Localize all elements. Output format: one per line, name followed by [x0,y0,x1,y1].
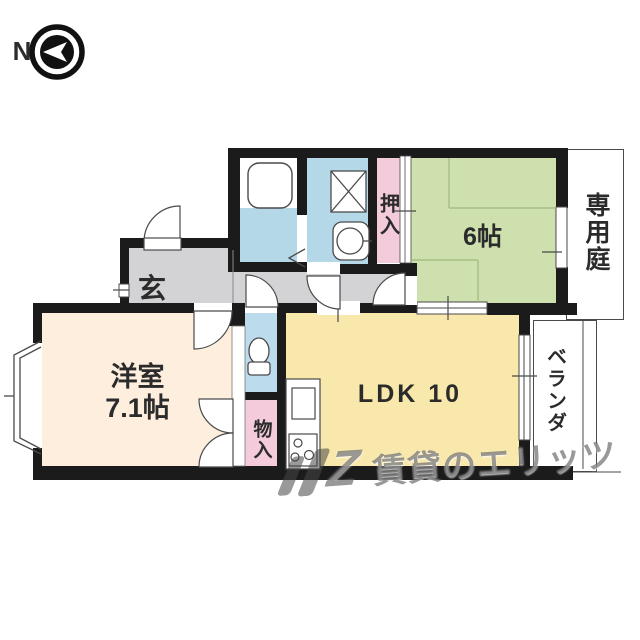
closet-label: 押入 [375,182,401,248]
western-room-label: 洋室 7.1帖 [55,360,220,426]
bathtub-icon [248,163,292,208]
storage-door-strip [232,326,245,466]
north-label: N [6,36,38,66]
kitchen-sink-icon [292,388,315,419]
western-room-label-line1: 洋室 [111,362,165,393]
tatami-window [542,207,567,268]
private-garden-label: 専用庭 [581,186,611,278]
north-compass-icon [32,27,82,77]
tatami-ldk-sliding-door [417,296,487,320]
washing-machine-icon [331,171,366,212]
toilet-icon [248,338,270,375]
bath-door-strip [297,215,307,262]
ldk-label: LDK 10 [330,378,490,410]
ldk-veranda-sliding-door [512,335,537,440]
entrance-door-panel [144,238,181,250]
plan-linework [0,0,640,640]
floor-plan: N 玄 洋室 7.1帖 LDK 10 6帖 押入 物入 専用庭 ベランダ Z 賃… [0,0,640,640]
tatami-room-label: 6帖 [435,220,530,250]
toilet-door-swing [246,275,278,307]
storage-label: 物入 [247,412,275,468]
entrance-label: 玄 [130,270,174,304]
entrance-window [113,284,129,297]
tatami-door-gap [404,276,417,305]
watermark-logo-letter: Z [324,438,363,499]
washroom-door-swing [307,276,340,309]
storage-door-swing-bottom [199,433,233,467]
entrance-door-swing [144,206,180,242]
washbasin-icon [333,222,372,260]
tatami-door-swing [373,273,405,305]
bay-window [4,341,41,454]
washroom-door-gap [307,262,340,274]
watermark-logo-icon: Z [277,442,367,502]
western-door-swing [194,311,232,349]
western-room-label-line2: 7.1帖 [105,393,170,424]
